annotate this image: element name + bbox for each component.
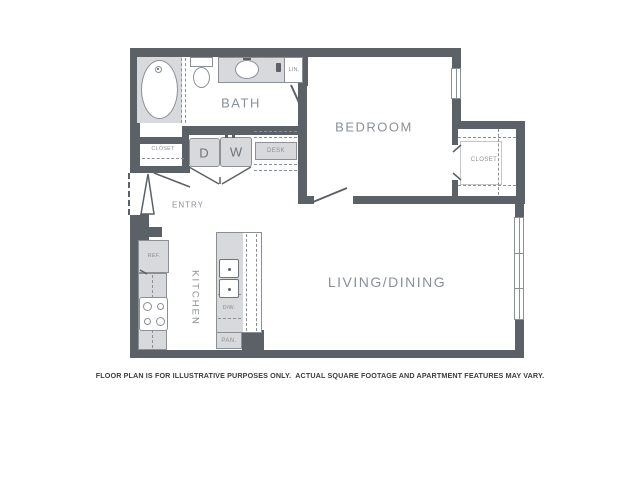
bedroom-window	[451, 68, 461, 99]
vanity-sink	[235, 60, 259, 79]
laundry-bifold-left	[189, 167, 219, 184]
desk-shelf-dash-1	[254, 131, 297, 132]
washer-hookup-2	[232, 131, 235, 138]
living-window-tick-2	[515, 288, 523, 289]
dishwasher-label: D/W.	[223, 305, 236, 311]
desk-shelf-dash-2	[254, 137, 297, 138]
washer-hookup-1	[225, 131, 228, 138]
sink-basin-1-dot	[228, 268, 231, 271]
pantry-label: PAN.	[221, 338, 236, 344]
bedroom-closet-dash-vert	[498, 129, 499, 195]
stove-burner-2	[157, 303, 164, 310]
disclaimer-text: FLOOR PLAN IS FOR ILLUSTRATIVE PURPOSES …	[0, 371, 640, 380]
toilet-bowl	[193, 67, 210, 88]
bedroom-label: BEDROOM	[335, 120, 413, 135]
entry-label: ENTRY	[172, 201, 204, 210]
island-dash-row-2	[218, 318, 241, 319]
bathtub-drain-dot	[157, 68, 159, 70]
wall-top	[130, 48, 460, 57]
bath-label: BATH	[221, 96, 261, 111]
living-window-tick-1	[515, 253, 523, 254]
tub-partition-dash-2	[185, 58, 186, 123]
stove-burner-3	[144, 318, 151, 325]
living-window	[514, 217, 524, 320]
wall-bedroom-bottom-right	[353, 196, 525, 204]
bedroom-door	[313, 188, 347, 202]
stove-burner-1	[143, 302, 152, 311]
sink-basin-2-dot	[228, 288, 231, 291]
living-window-mullion	[519, 218, 520, 319]
desk-label: DESK	[267, 148, 285, 154]
vanity-faucet-icon	[276, 63, 281, 72]
wall-bedroom-right-top	[452, 48, 461, 68]
entry-door-leaf	[141, 174, 154, 214]
entry-closet-door	[154, 173, 190, 187]
wall-bedroom-divider	[298, 82, 307, 204]
floor-plan: BATH BEDROOM LIVING/DINING ENTRY KITCHEN…	[0, 0, 640, 480]
kitchen-label: KITCHEN	[190, 270, 201, 326]
stove	[139, 297, 168, 331]
wall-living-right-top	[515, 203, 524, 217]
wall-bedroom-closet-top	[452, 121, 525, 129]
refrigerator-label: REF.	[148, 253, 161, 259]
wall-pantry-stub	[242, 330, 264, 358]
laundry-bifold-right	[222, 167, 251, 184]
wall-kitchen-stub	[140, 227, 162, 237]
bedroom-closet-dash-top	[458, 137, 516, 138]
island-bar-dash-2	[256, 234, 257, 331]
wall-living-right-bottom	[515, 320, 524, 358]
island-bar-dash-1	[246, 234, 247, 331]
sink-faucet-icon	[243, 58, 251, 60]
desk-shelf-dash-4	[254, 170, 297, 171]
wall-entry-closet-bottom	[140, 166, 190, 173]
dryer-label: D	[199, 146, 208, 161]
wall-bedroom-bottom-left	[298, 196, 314, 204]
wall-entry-closet-top	[140, 137, 186, 144]
linen-closet-label: LIN.	[289, 67, 300, 73]
entry-closet-shelf-dash	[142, 158, 184, 159]
toilet-tank	[190, 57, 213, 67]
tub-partition-dash-1	[181, 58, 182, 123]
bedroom-closet-label: CLOSET	[471, 157, 497, 163]
door-lines	[0, 0, 640, 480]
washer-label: W	[230, 145, 242, 160]
wall-laundry-left	[182, 135, 189, 167]
bedroom-closet-box	[460, 141, 502, 185]
stove-burner-4	[156, 317, 165, 326]
entry-closet-label: CLOSET	[151, 146, 174, 152]
desk-shelf-dash-3	[254, 164, 297, 165]
bedroom-closet-dash-bottom	[458, 185, 516, 186]
entry-door-opening-dash	[128, 173, 130, 215]
wall-bottom	[130, 350, 524, 358]
living-dining-label: LIVING/DINING	[328, 274, 446, 290]
wall-bedroom-closet-right	[516, 121, 525, 203]
bedroom-window-mullion	[456, 69, 457, 98]
wall-bedroom-closet-left-b	[452, 180, 458, 196]
